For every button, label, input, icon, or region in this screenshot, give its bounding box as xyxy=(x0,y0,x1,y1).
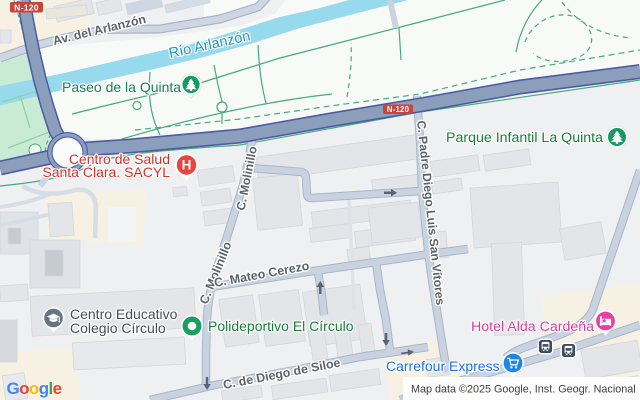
svg-text:Google: Google xyxy=(7,379,62,398)
svg-text:Map data ©2025 Google, Inst. G: Map data ©2025 Google, Inst. Geogr. Naci… xyxy=(411,384,636,396)
svg-text:Carrefour Express: Carrefour Express xyxy=(386,358,500,374)
svg-text:Santa Clara. SACYL: Santa Clara. SACYL xyxy=(42,164,170,180)
svg-text:N-120: N-120 xyxy=(14,2,39,12)
svg-text:Parque Infantil La Quinta: Parque Infantil La Quinta xyxy=(446,130,603,146)
svg-text:Hotel Alda Cardeña: Hotel Alda Cardeña xyxy=(471,319,594,335)
svg-text:H: H xyxy=(182,158,192,173)
svg-text:Polideportivo El Círculo: Polideportivo El Círculo xyxy=(208,318,354,334)
svg-text:N-120: N-120 xyxy=(387,105,410,114)
svg-text:Colegio Círculo: Colegio Círculo xyxy=(70,320,166,336)
svg-text:Paseo de la Quinta: Paseo de la Quinta xyxy=(62,79,181,95)
